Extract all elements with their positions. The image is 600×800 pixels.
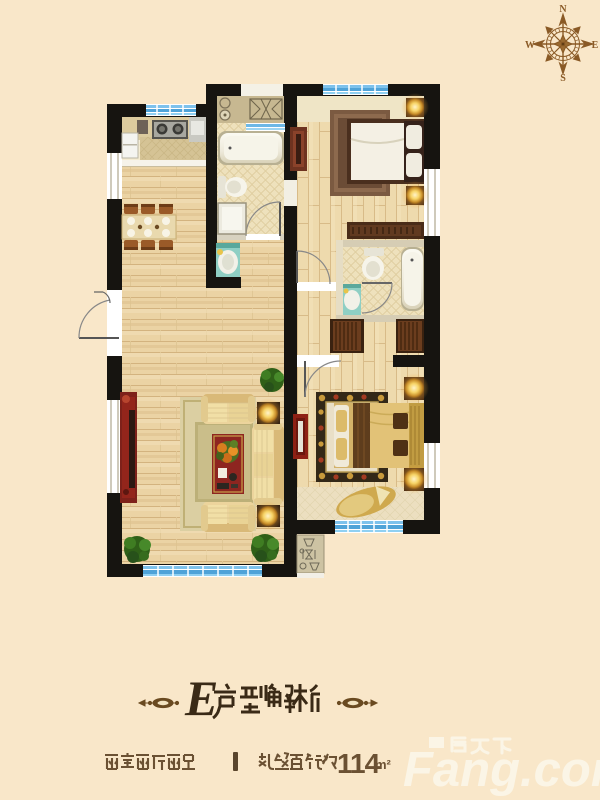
- svg-text:m²: m²: [375, 757, 392, 772]
- svg-text:S: S: [560, 73, 566, 84]
- svg-text:N: N: [559, 4, 567, 15]
- svg-text:E: E: [592, 40, 599, 51]
- svg-text:W: W: [525, 40, 535, 51]
- svg-text:Fang.com: Fang.com: [403, 743, 600, 797]
